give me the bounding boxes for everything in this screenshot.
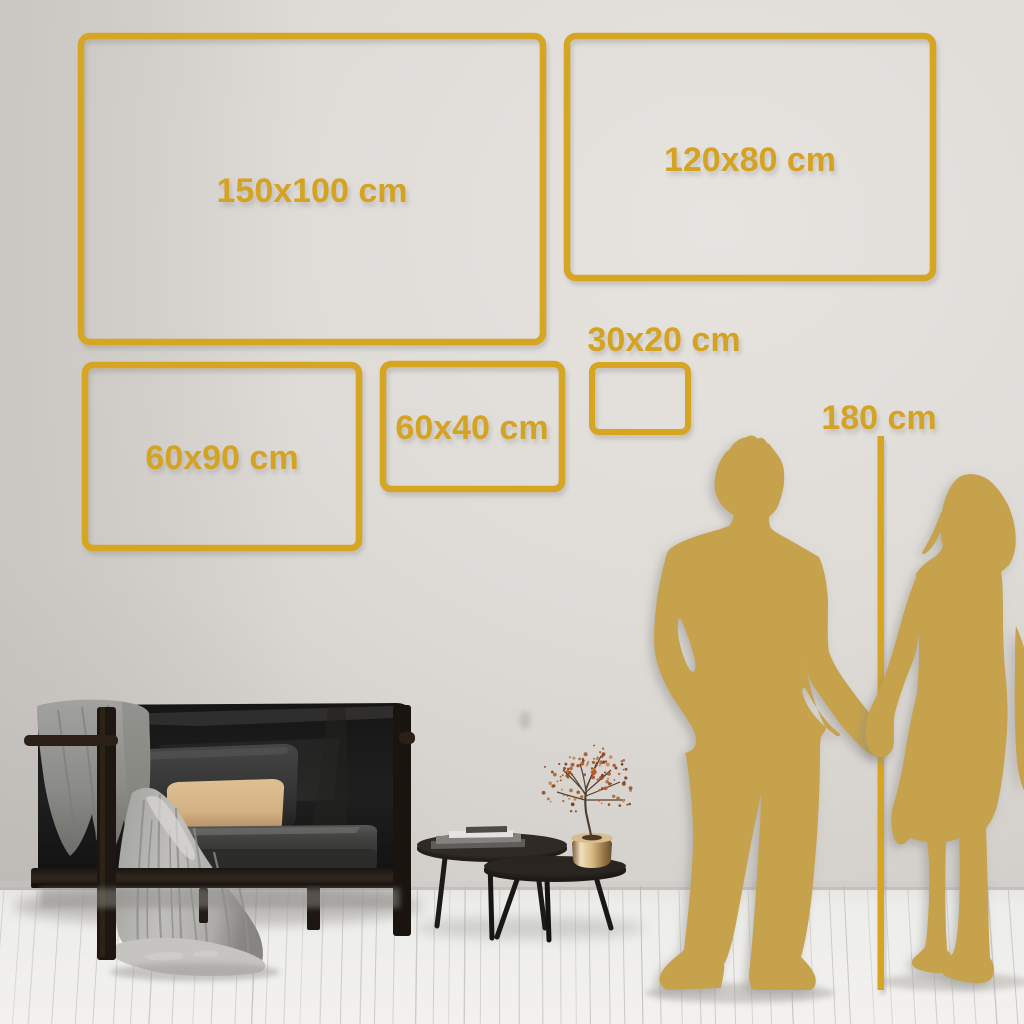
svg-text:150x100 cm: 150x100 cm — [217, 172, 408, 210]
svg-text:30x20 cm: 30x20 cm — [587, 321, 740, 359]
svg-text:180 cm: 180 cm — [821, 399, 936, 437]
svg-text:60x90 cm: 60x90 cm — [145, 439, 298, 477]
svg-text:120x80 cm: 120x80 cm — [664, 141, 836, 179]
svg-text:60x40 cm: 60x40 cm — [395, 409, 548, 447]
